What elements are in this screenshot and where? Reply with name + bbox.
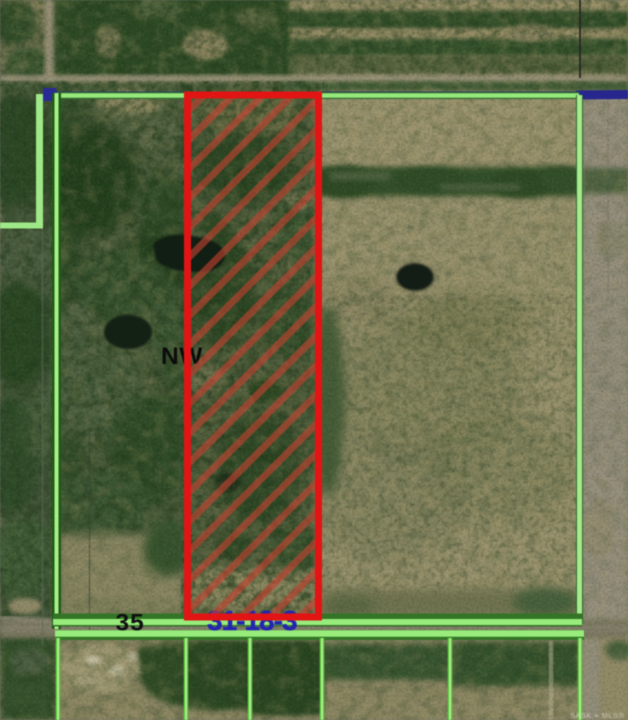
svg-text:SASK + MLS®: SASK + MLS® bbox=[570, 711, 624, 720]
svg-text:35: 35 bbox=[116, 610, 145, 637]
